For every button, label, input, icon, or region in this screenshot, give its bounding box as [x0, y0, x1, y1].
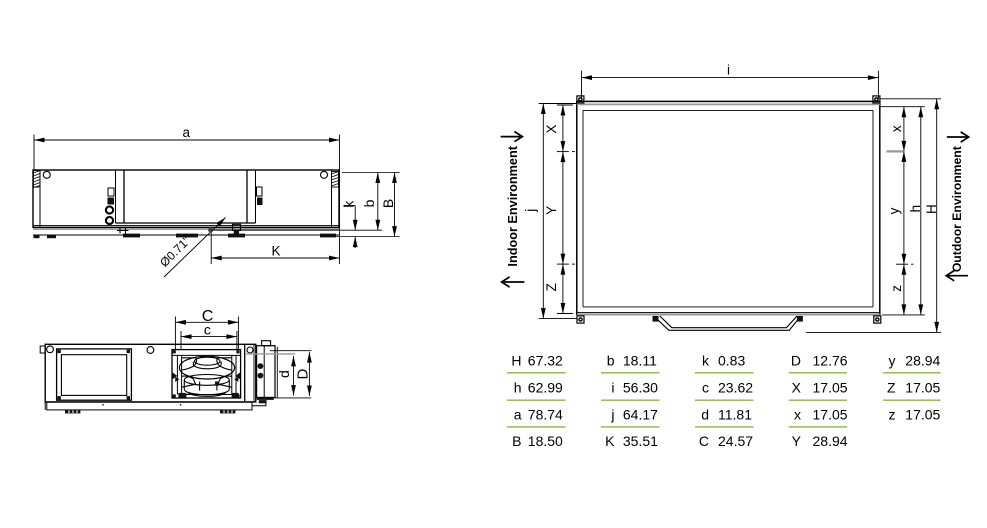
svg-text:a: a	[182, 125, 190, 140]
svg-text:0.83: 0.83	[718, 353, 745, 369]
svg-text:62.99: 62.99	[528, 380, 563, 396]
svg-text:12.76: 12.76	[813, 353, 848, 369]
svg-text:H: H	[511, 353, 521, 369]
svg-text:67.32: 67.32	[528, 353, 563, 369]
svg-text:X: X	[544, 125, 559, 134]
svg-text:i: i	[611, 380, 614, 396]
svg-text:35.51: 35.51	[623, 433, 658, 449]
svg-text:24.57: 24.57	[718, 433, 753, 449]
svg-text:28.94: 28.94	[813, 433, 848, 449]
svg-text:Z: Z	[544, 283, 559, 291]
svg-text:Ø0.71": Ø0.71"	[157, 234, 193, 270]
svg-text:18.50: 18.50	[528, 433, 563, 449]
svg-text:j: j	[610, 407, 614, 423]
svg-text:D: D	[791, 353, 801, 369]
svg-text:17.05: 17.05	[905, 380, 940, 396]
svg-text:c: c	[204, 322, 211, 338]
svg-text:b: b	[607, 353, 615, 369]
svg-text:a: a	[514, 407, 522, 423]
svg-text:Y: Y	[544, 206, 559, 215]
svg-text:D: D	[295, 369, 312, 380]
svg-text:K: K	[271, 244, 280, 259]
svg-text:x: x	[889, 125, 904, 132]
svg-text:k: k	[702, 353, 710, 369]
svg-text:17.05: 17.05	[813, 407, 848, 423]
svg-text:h: h	[514, 380, 522, 396]
svg-text:B: B	[380, 199, 396, 208]
svg-text:d: d	[276, 370, 292, 378]
svg-text:y: y	[889, 353, 896, 369]
svg-text:Z: Z	[887, 380, 896, 396]
svg-text:18.11: 18.11	[623, 353, 657, 369]
svg-text:c: c	[702, 380, 709, 396]
svg-text:z: z	[889, 285, 904, 292]
svg-text:B: B	[512, 433, 521, 449]
svg-text:17.05: 17.05	[813, 380, 848, 396]
svg-text:h: h	[908, 205, 923, 213]
svg-text:z: z	[889, 407, 896, 423]
svg-text:56.30: 56.30	[623, 380, 658, 396]
svg-text:x: x	[794, 407, 801, 423]
svg-text:23.62: 23.62	[718, 380, 753, 396]
svg-text:i: i	[727, 63, 730, 78]
svg-text:Y: Y	[792, 433, 802, 449]
svg-text:d: d	[701, 407, 709, 423]
svg-text:K: K	[605, 433, 615, 449]
svg-text:b: b	[361, 199, 377, 207]
svg-text:H: H	[924, 204, 939, 214]
svg-text:17.05: 17.05	[905, 407, 940, 423]
svg-text:Indoor Environment: Indoor Environment	[506, 145, 520, 266]
svg-text:j: j	[523, 209, 538, 213]
svg-text:28.94: 28.94	[905, 353, 940, 369]
svg-text:k: k	[340, 200, 356, 208]
svg-text:X: X	[792, 380, 802, 396]
svg-text:y: y	[887, 207, 902, 214]
svg-text:64.17: 64.17	[623, 407, 658, 423]
svg-text:11.81: 11.81	[718, 407, 752, 423]
svg-text:78.74: 78.74	[528, 407, 563, 423]
svg-text:C: C	[699, 433, 709, 449]
svg-text:Outdoor Environment: Outdoor Environment	[950, 146, 964, 272]
